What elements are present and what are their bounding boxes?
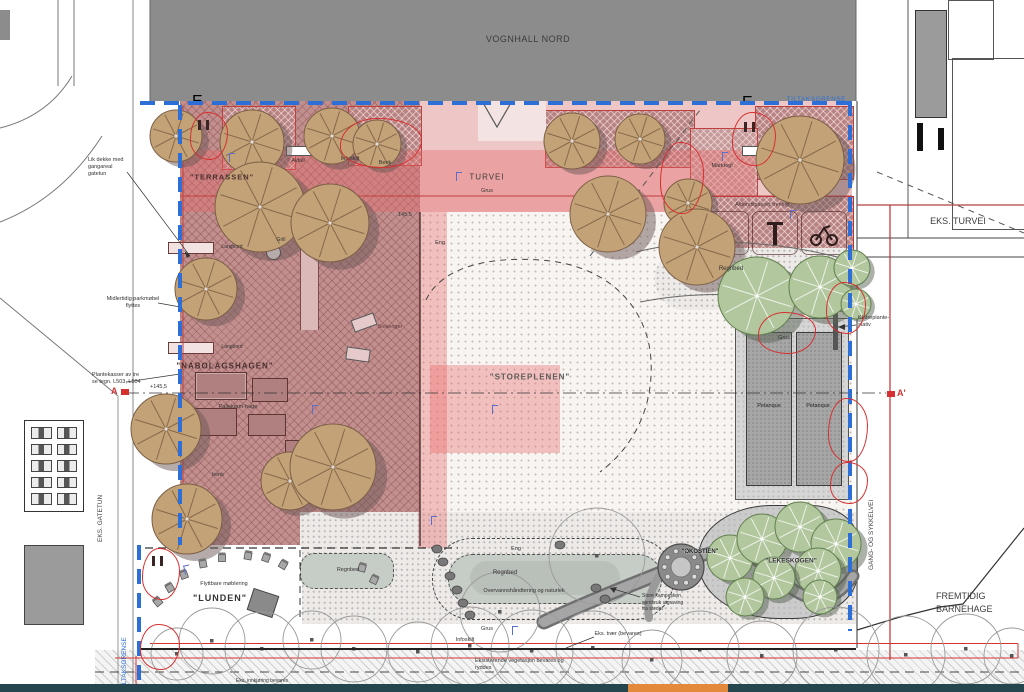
eks-traer-label: Eks. trær (bevares): [594, 631, 641, 637]
bench: [286, 146, 312, 156]
furniture-symbol-icon: [456, 172, 462, 181]
window-icon: [31, 493, 52, 505]
trening-label: Alderstilpasset trening: [735, 202, 789, 208]
regnbed-ne-label: Regnbed: [719, 266, 743, 272]
window-icon: [57, 444, 78, 456]
barnehage-label: FREMTIDIG BARNEHAGE: [936, 590, 993, 615]
furniture-symbol-icon: [744, 122, 747, 132]
furniture-symbol-icon: [492, 405, 498, 414]
area-label-terrassen: "TERRASSEN": [190, 173, 254, 182]
pallet-bed: [285, 440, 317, 462]
window-icon: [31, 444, 52, 456]
taskbar[interactable]: [0, 684, 1024, 692]
building-vognhall-nord: [150, 0, 856, 101]
midlertidig-annotation: Midlertidig parkmøbel flyttes: [107, 296, 160, 310]
regnbed-north: [655, 248, 853, 310]
plantekasser-annotation: Plantekasser av tre se tegn. L503, L504: [92, 372, 141, 386]
revision-cloud: [828, 398, 868, 462]
eksisterende-veg-annotation: Eksisterende vegetasjon bevares og rydde…: [475, 658, 564, 672]
section-flag: [121, 389, 129, 395]
furniture-symbol-icon: [160, 556, 163, 566]
flyttbar-label: Flyttbare møblering: [200, 581, 247, 587]
window-icon: [31, 477, 52, 489]
area-label-lunden: "LUNDEN": [193, 593, 247, 603]
petanque-label: Petanque: [757, 403, 781, 409]
boundary-label-left: TILTAKSGRENSE: [121, 596, 128, 690]
window-icon: [31, 427, 52, 439]
exercise-equipment-icon: [802, 212, 846, 254]
window-icon: [57, 493, 78, 505]
petanque-label: Petanque: [806, 403, 830, 409]
building-with-windows: [24, 420, 84, 512]
langbord-label: Langbord: [221, 344, 242, 350]
building-outline: [952, 58, 1024, 230]
eng-label: Eng: [435, 240, 445, 246]
regnbed-central-label: Regnbed: [493, 570, 517, 576]
building-fragment: [0, 10, 10, 40]
furniture-symbol-icon: [790, 210, 796, 219]
window-icon: [57, 427, 78, 439]
regnbed-west-label: Regnbed: [337, 567, 359, 573]
boundary-label-top: TILTAKSGRENSE: [746, 96, 846, 103]
building-gray-left: [24, 545, 84, 625]
grill-label: Grill: [277, 237, 286, 243]
eks-turvei-label: EKS. TURVEI: [930, 216, 986, 226]
furniture-symbol-icon: [206, 120, 209, 130]
avfall-label: Avfall: [291, 158, 304, 164]
gang-sykkelvei-label: GANG- OG SYKKELVEI: [868, 448, 875, 570]
pallet-bed: [248, 414, 286, 436]
section-marker-a: A: [111, 386, 118, 396]
marktegl-label: Marktegl: [711, 163, 732, 169]
kampestein-annotation: Store kampestein gjenbruk utgraving fra …: [642, 593, 683, 613]
langbord-table: [168, 342, 214, 354]
overvann-label: Overvannshåndtering og naturlek: [483, 588, 564, 594]
exercise-tile: [703, 211, 749, 255]
furniture-symbol-icon: [431, 516, 437, 525]
furniture-symbol-icon: [312, 405, 318, 414]
area-label-storeplenen: "STOREPLENEN": [490, 373, 570, 382]
path-in-terrassen: [300, 212, 319, 330]
site-plan-canvas: VOGNHALL NORD: [0, 0, 1024, 692]
building-outline: [915, 10, 947, 118]
langbord-label: Langbord: [221, 244, 242, 250]
taskbar-active-item[interactable]: [628, 684, 728, 692]
pallet-bed: [195, 408, 237, 436]
section-flag: [887, 391, 895, 397]
furniture-symbol-icon: [752, 122, 755, 132]
langbord-table: [168, 242, 214, 254]
elevation-label: +145,5: [150, 384, 167, 390]
window-icon: [57, 477, 78, 489]
benk-small-label: benk: [212, 472, 224, 478]
lik-dekke-annotation: Lik dekke med gangareal gatetun: [88, 157, 123, 178]
elevation-label: 145,5: [398, 212, 412, 218]
window-icon: [31, 460, 52, 472]
building-detail: [938, 128, 944, 150]
solsenger-label: Solsenger: [378, 324, 403, 330]
turvei-label: TURVEI: [469, 173, 504, 182]
area-label-okostien: "ØKOSTIEN": [681, 549, 718, 555]
turvei-surface-label: Grus: [481, 188, 493, 194]
furniture-symbol-icon: [512, 626, 518, 635]
grill-point: [266, 245, 281, 260]
building-label: VOGNHALL NORD: [486, 34, 570, 44]
pallet-bed: [252, 378, 288, 402]
eks-gatetun-label: EKS. GATETUN: [97, 450, 104, 542]
pallet-bed: [195, 372, 247, 400]
building-detail: [917, 123, 923, 151]
eng-label: Eng: [511, 546, 521, 552]
area-label-nabolagshagen: "NABOLAGSHAGEN": [176, 362, 273, 371]
furniture-symbol-icon: [152, 556, 155, 566]
section-marker-a-prime: A': [897, 388, 906, 398]
furniture-symbol-icon: [722, 152, 728, 161]
revision-cloud: [830, 462, 868, 504]
window-icon: [57, 460, 78, 472]
entrance-notch: [478, 101, 546, 141]
petanque-court: [746, 332, 792, 486]
grus-bottom-label: Grus: [481, 626, 493, 632]
heavy-edge-line: [140, 648, 856, 650]
infoskilt-bottom-label: Infoskilt: [456, 637, 475, 643]
boundary-line-left-lower: [137, 545, 141, 692]
furniture-symbol-icon: [229, 153, 235, 162]
boundary-line-right: [848, 101, 852, 631]
boundary-line-left: [178, 105, 182, 545]
furniture-symbol-icon: [198, 120, 201, 130]
exercise-tile: [801, 211, 847, 255]
pallekarm-label: Pallekarm-hage: [219, 404, 258, 410]
area-label-lekeskogen: "LEKESKOGEN": [765, 558, 817, 565]
exercise-equipment-icon: [704, 212, 748, 254]
building-outline: [948, 0, 994, 60]
